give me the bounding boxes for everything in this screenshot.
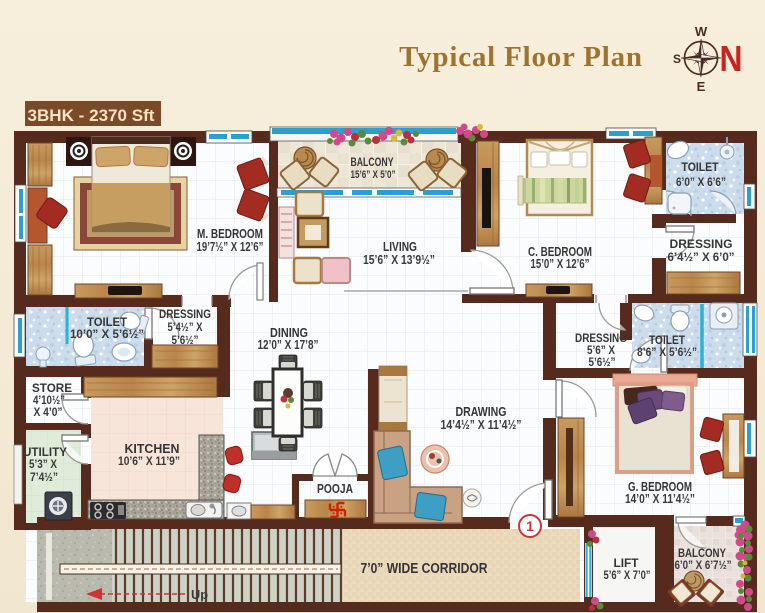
- svg-text:E: E: [697, 79, 706, 94]
- svg-text:14’4½” X 11’4½”: 14’4½” X 11’4½”: [441, 418, 522, 432]
- svg-text:5’6” X 7’0”: 5’6” X 7’0”: [604, 570, 651, 582]
- svg-text:DRESSING: DRESSING: [575, 331, 627, 345]
- svg-text:5’4½” X: 5’4½” X: [168, 322, 203, 334]
- svg-text:Up: Up: [191, 588, 208, 602]
- svg-text:6’0” X 6’6”: 6’0” X 6’6”: [676, 177, 726, 189]
- svg-text:Typical Floor Plan: Typical Floor Plan: [399, 41, 643, 73]
- svg-text:N: N: [720, 38, 743, 79]
- svg-text:5’3” X: 5’3” X: [29, 459, 57, 471]
- svg-text:5’6” X: 5’6” X: [587, 345, 615, 357]
- svg-text:15’6” X 13’9½”: 15’6” X 13’9½”: [363, 253, 435, 267]
- svg-text:5’6½”: 5’6½”: [172, 335, 199, 347]
- svg-text:12’0” X 17’8”: 12’0” X 17’8”: [258, 338, 319, 352]
- svg-text:10’0” X 5’6½”: 10’0” X 5’6½”: [70, 329, 144, 341]
- svg-text:15’6” X 5’0”: 15’6” X 5’0”: [351, 169, 396, 181]
- svg-text:8’6” X 5’6½”: 8’6” X 5’6½”: [637, 347, 697, 359]
- svg-text:DRESSING: DRESSING: [670, 237, 733, 251]
- svg-text:TOILET: TOILET: [87, 315, 128, 329]
- svg-text:7’0” WIDE CORRIDOR: 7’0” WIDE CORRIDOR: [361, 561, 488, 577]
- svg-text:6’0” X 6’7½”: 6’0” X 6’7½”: [675, 560, 732, 572]
- svg-text:1: 1: [526, 518, 534, 534]
- svg-text:STORE: STORE: [32, 381, 72, 395]
- svg-text:3BHK - 2370 Sft: 3BHK - 2370 Sft: [28, 106, 155, 125]
- svg-text:DRESSING: DRESSING: [159, 307, 211, 321]
- svg-text:X 4’0”: X 4’0”: [34, 407, 63, 419]
- svg-text:6’4½” X 6’0”: 6’4½” X 6’0”: [668, 252, 735, 264]
- svg-text:15’0” X 12’6”: 15’0” X 12’6”: [531, 257, 590, 271]
- svg-text:7’4½”: 7’4½”: [30, 472, 58, 484]
- svg-text:BALCONY: BALCONY: [678, 546, 726, 560]
- svg-text:4’10½”: 4’10½”: [33, 395, 65, 407]
- svg-text:M. BEDROOM: M. BEDROOM: [197, 226, 263, 241]
- svg-text:UTILITY: UTILITY: [23, 445, 67, 459]
- svg-text:10’6” X 11’9”: 10’6” X 11’9”: [118, 454, 180, 468]
- svg-text:5’6½”: 5’6½”: [589, 357, 616, 369]
- svg-text:LIFT: LIFT: [614, 556, 640, 570]
- svg-text:S: S: [673, 52, 681, 66]
- svg-text:POOJA: POOJA: [317, 482, 353, 496]
- svg-text:BALCONY: BALCONY: [351, 157, 394, 169]
- svg-text:14’0” X 11’4½”: 14’0” X 11’4½”: [625, 492, 695, 506]
- svg-text:TOILET: TOILET: [682, 162, 719, 174]
- svg-text:TOILET: TOILET: [649, 333, 686, 347]
- svg-text:19’7½” X 12’6”: 19’7½” X 12’6”: [197, 240, 264, 254]
- svg-text:DRAWING: DRAWING: [456, 404, 507, 419]
- svg-text:W: W: [695, 24, 708, 39]
- svg-text:LIVING: LIVING: [383, 239, 417, 254]
